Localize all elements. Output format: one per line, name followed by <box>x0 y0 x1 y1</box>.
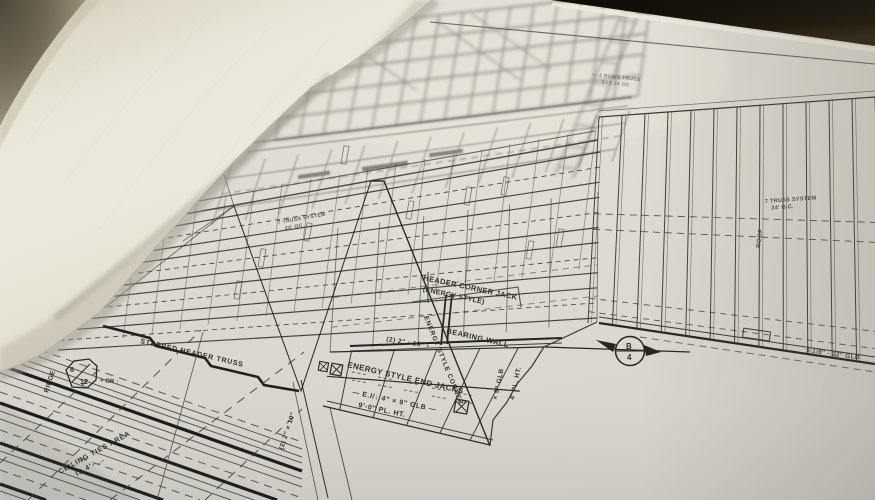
svg-text:12: 12 <box>80 379 88 386</box>
svg-text:6: 6 <box>70 367 74 374</box>
svg-text:B: B <box>626 342 632 351</box>
svg-text:4: 4 <box>627 353 632 362</box>
